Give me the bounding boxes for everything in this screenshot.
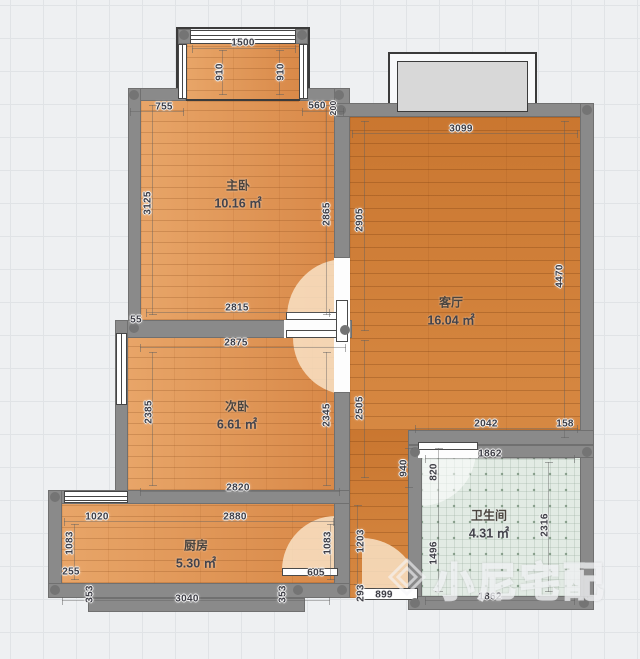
dim-bay-width: 1500: [231, 38, 254, 49]
wall-corner-dot: [179, 30, 189, 40]
dim-hall-height: 940: [399, 459, 410, 477]
wall-master-left: [128, 88, 141, 333]
dim-living-top: 3099: [449, 124, 472, 135]
dim-master-bottom: 2815: [225, 303, 248, 314]
dim-second-left: 2385: [144, 400, 155, 423]
dim-hall-left-upper: 1203: [356, 529, 367, 552]
dim-kitchen-bottom-left: 353: [85, 585, 96, 603]
wall-corner-dot: [337, 585, 347, 595]
wall-corner-dot: [129, 90, 139, 100]
room-label-kitchen: 厨房 5.30 ㎡: [176, 537, 216, 574]
dim-kitchen-bottom-right: 353: [278, 585, 289, 603]
dim-master-top-right: 560: [308, 101, 326, 112]
dim-bay-left: 910: [215, 63, 226, 81]
dim-bay-right: 910: [276, 63, 287, 81]
room-label-second: 次卧 6.61 ㎡: [217, 398, 257, 435]
dim-kitchen-door: 605: [307, 568, 325, 579]
room-area: 5.30 ㎡: [176, 555, 216, 574]
wall-right-outer: [580, 103, 594, 610]
second-bedroom-window[interactable]: [116, 333, 127, 405]
room-area: 4.31 ㎡: [469, 525, 509, 544]
dim-kitchen-window: 1020: [85, 512, 108, 523]
floorplan-canvas: 1500 910 910 755 560 200 3125 2865 2815 …: [0, 0, 640, 659]
dim-kitchen-right: 1083: [323, 531, 334, 554]
wall-kitchen-left: [48, 490, 62, 598]
wall-corner-dot: [579, 598, 589, 608]
wall-corner-dot: [50, 585, 60, 595]
dim-bath-bottom: 1862: [478, 592, 501, 603]
room-name: 厨房: [176, 537, 216, 555]
dim-living-left-lower: 2505: [355, 396, 366, 419]
dim-living-bottom-right: 158: [556, 419, 574, 430]
room-label-master: 主卧 10.16 ㎡: [214, 177, 261, 214]
dim-master-right: 2865: [322, 202, 333, 225]
wall-corner-dot: [582, 447, 592, 457]
room-living-floor[interactable]: [350, 117, 580, 430]
hall-door[interactable]: [336, 300, 348, 342]
room-label-living: 客厅 16.04 ㎡: [427, 294, 474, 331]
room-name: 主卧: [214, 177, 261, 195]
room-area: 16.04 ㎡: [427, 312, 474, 331]
dim-living-bottom: 2042: [474, 419, 497, 430]
dim-bath-right: 2316: [540, 513, 551, 536]
balcony-window[interactable]: [397, 61, 528, 112]
dim-master-top-corner: 200: [328, 100, 338, 115]
dim-bath-left: 1496: [429, 541, 440, 564]
dim-entry-door: 899: [375, 590, 393, 601]
wall-bath-left: [408, 445, 422, 610]
dim-kitchen-left-step: 255: [62, 567, 80, 578]
dim-hall-left-lower: 293: [356, 584, 367, 602]
wall-corner-dot: [50, 492, 60, 502]
room-area: 6.61 ㎡: [217, 416, 257, 435]
room-name: 次卧: [217, 398, 257, 416]
dim-bath-top: 1862: [478, 449, 501, 460]
dim-second-bottom: 2820: [226, 483, 249, 494]
dim-second-right: 2345: [322, 403, 333, 426]
room-name: 客厅: [427, 294, 474, 312]
dim-kitchen-top: 2880: [223, 512, 246, 523]
wall-corner-dot: [582, 105, 592, 115]
wall-corner-dot: [334, 90, 344, 100]
room-name: 卫生间: [469, 507, 509, 525]
dim-second-top: 2875: [224, 338, 247, 349]
dim-living-right: 4470: [555, 264, 566, 287]
dim-master-top-left: 755: [155, 102, 173, 113]
wall-corner-dot: [410, 598, 420, 608]
dim-kitchen-left: 1083: [65, 531, 76, 554]
dim-kitchen-bottom: 3040: [175, 594, 198, 605]
wall-corner-dot: [297, 30, 307, 40]
dim-left-step: 55: [130, 315, 142, 326]
wall-corner-dot: [293, 585, 303, 595]
bay-window-left[interactable]: [178, 44, 187, 99]
room-area: 10.16 ㎡: [214, 195, 261, 214]
dim-living-left-upper: 2905: [355, 208, 366, 231]
kitchen-window[interactable]: [64, 491, 128, 503]
wall-corner-dot: [340, 325, 350, 335]
dim-bath-door: 820: [429, 463, 440, 481]
bath-door[interactable]: [418, 442, 478, 450]
dim-master-left: 3125: [143, 191, 154, 214]
bay-window-right[interactable]: [299, 44, 308, 99]
room-label-bath: 卫生间 4.31 ㎡: [469, 507, 509, 544]
